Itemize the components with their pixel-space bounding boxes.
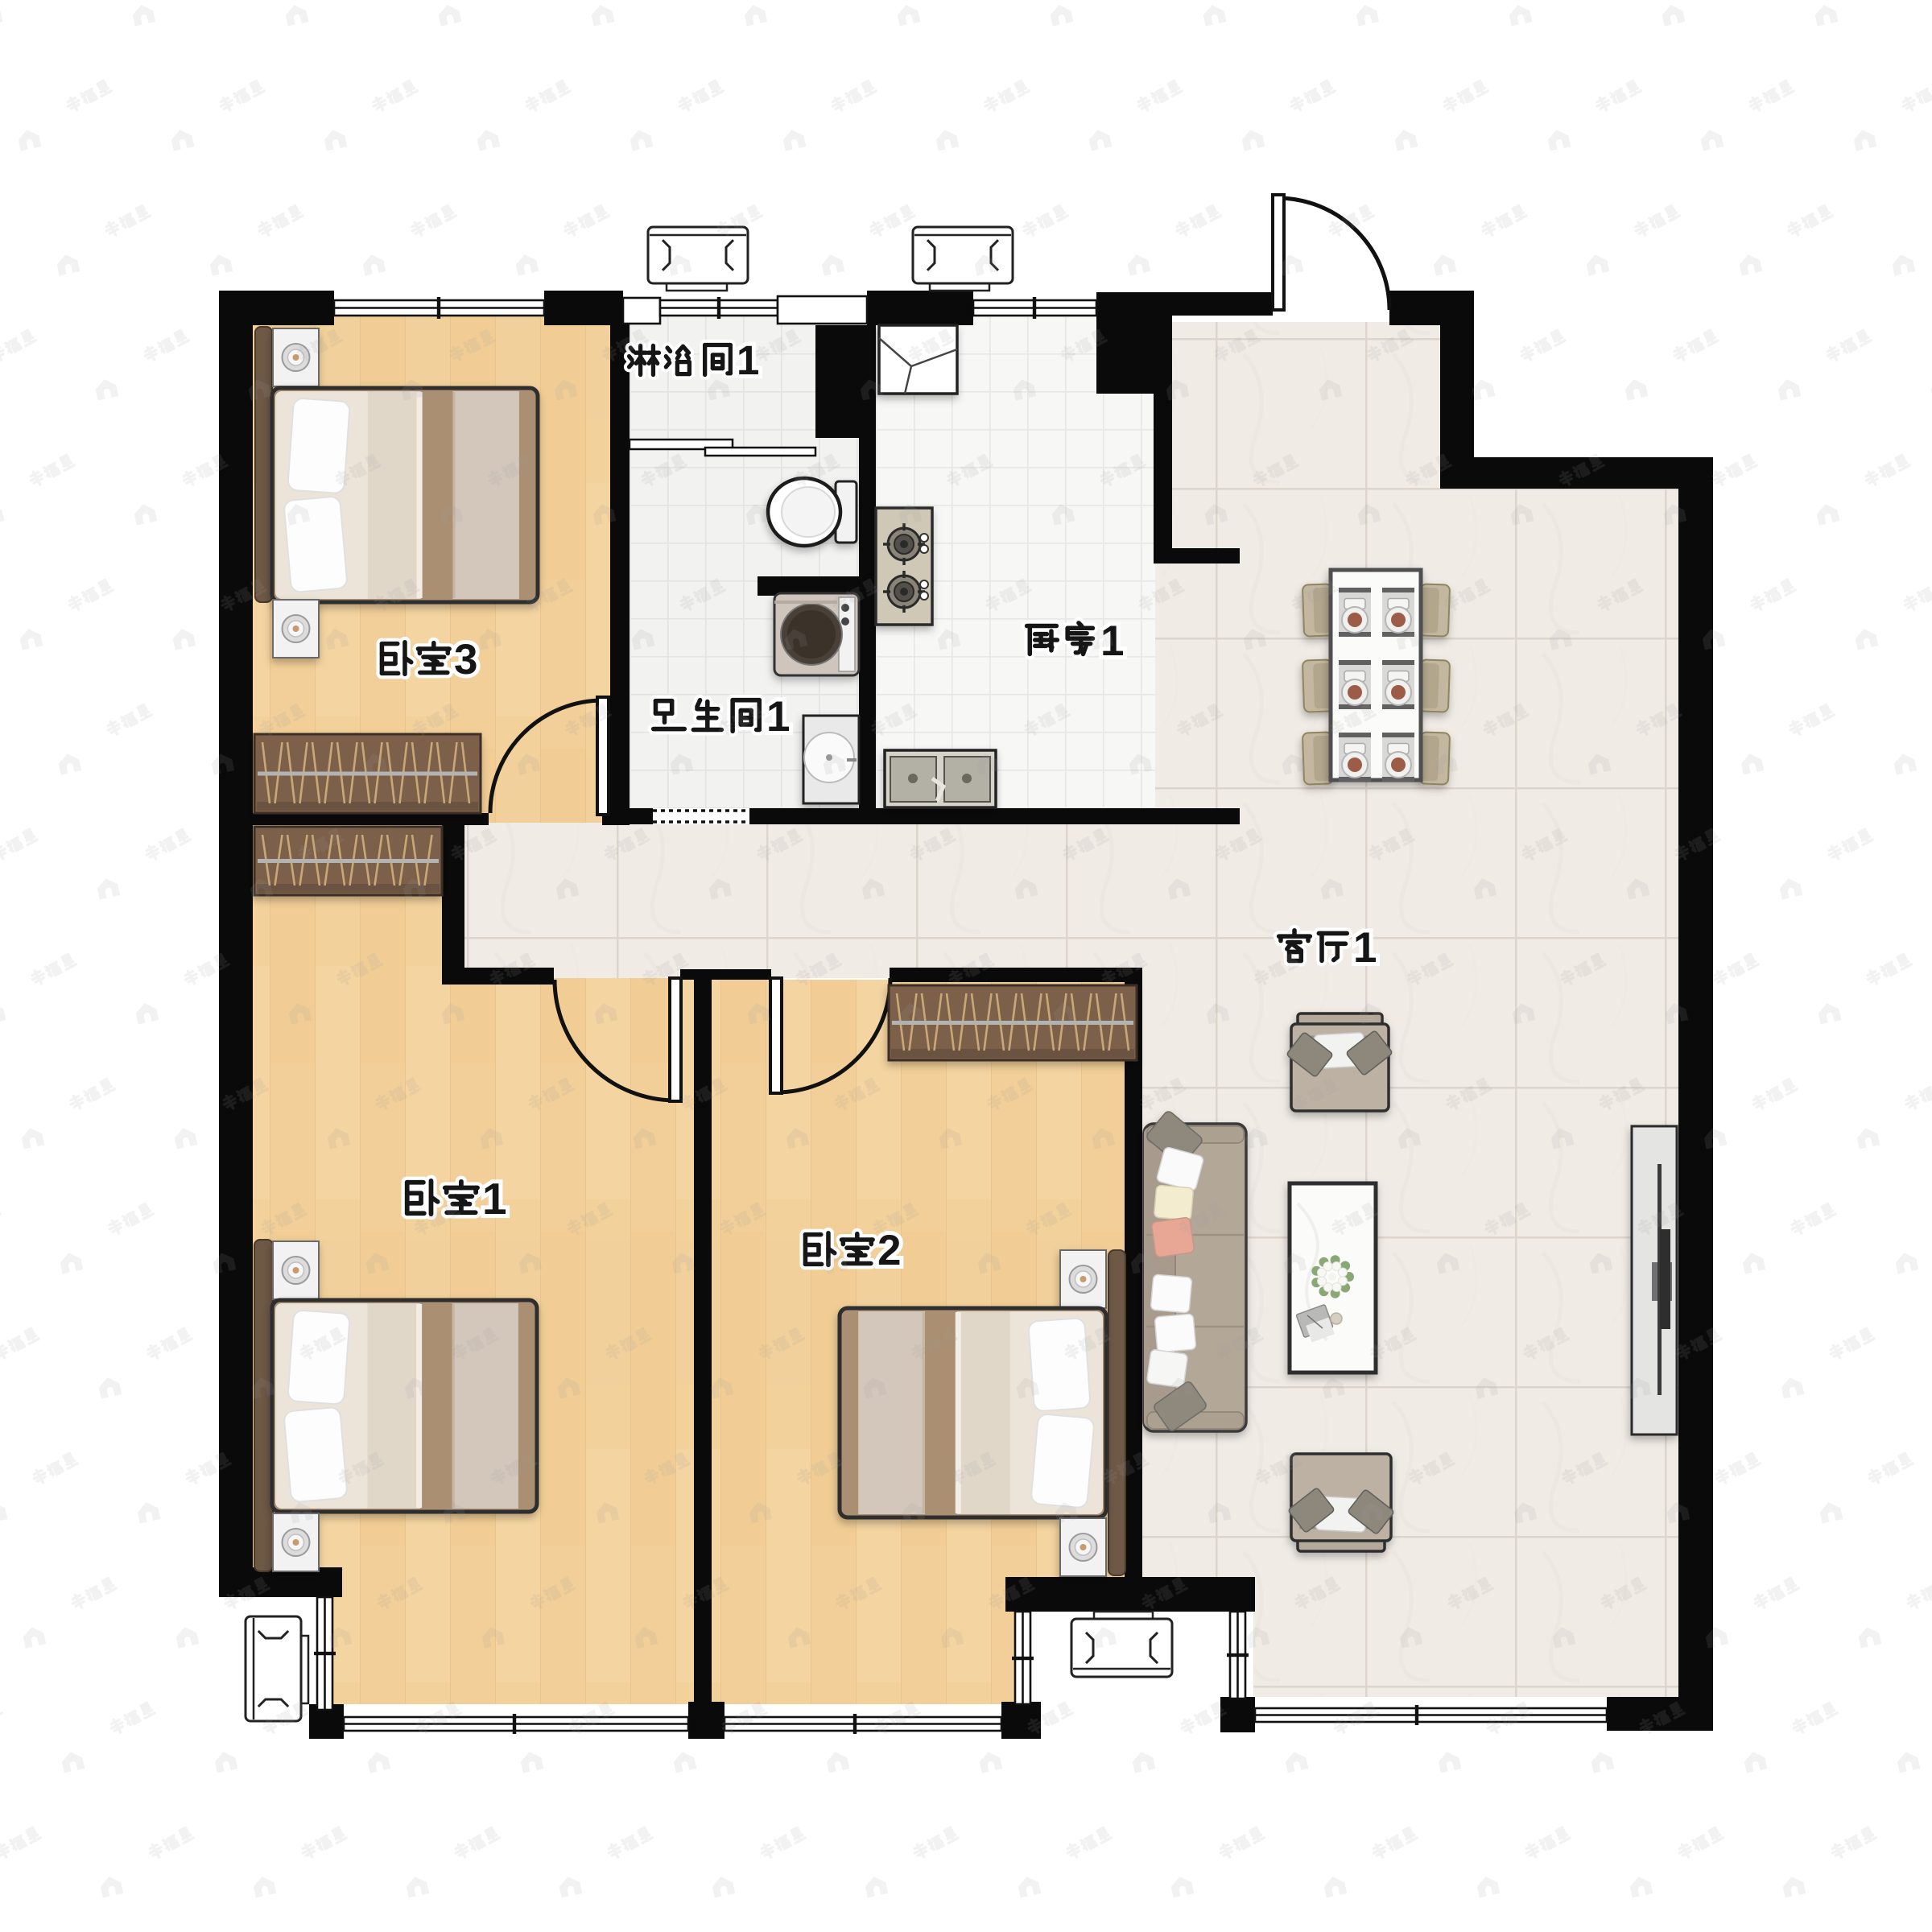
svg-text:1: 1 (737, 337, 759, 383)
svg-text:3: 3 (454, 636, 477, 683)
svg-text:1: 1 (482, 1174, 507, 1224)
svg-text:2: 2 (877, 1227, 901, 1274)
svg-text:1: 1 (766, 693, 790, 741)
svg-text:1: 1 (1353, 924, 1377, 972)
